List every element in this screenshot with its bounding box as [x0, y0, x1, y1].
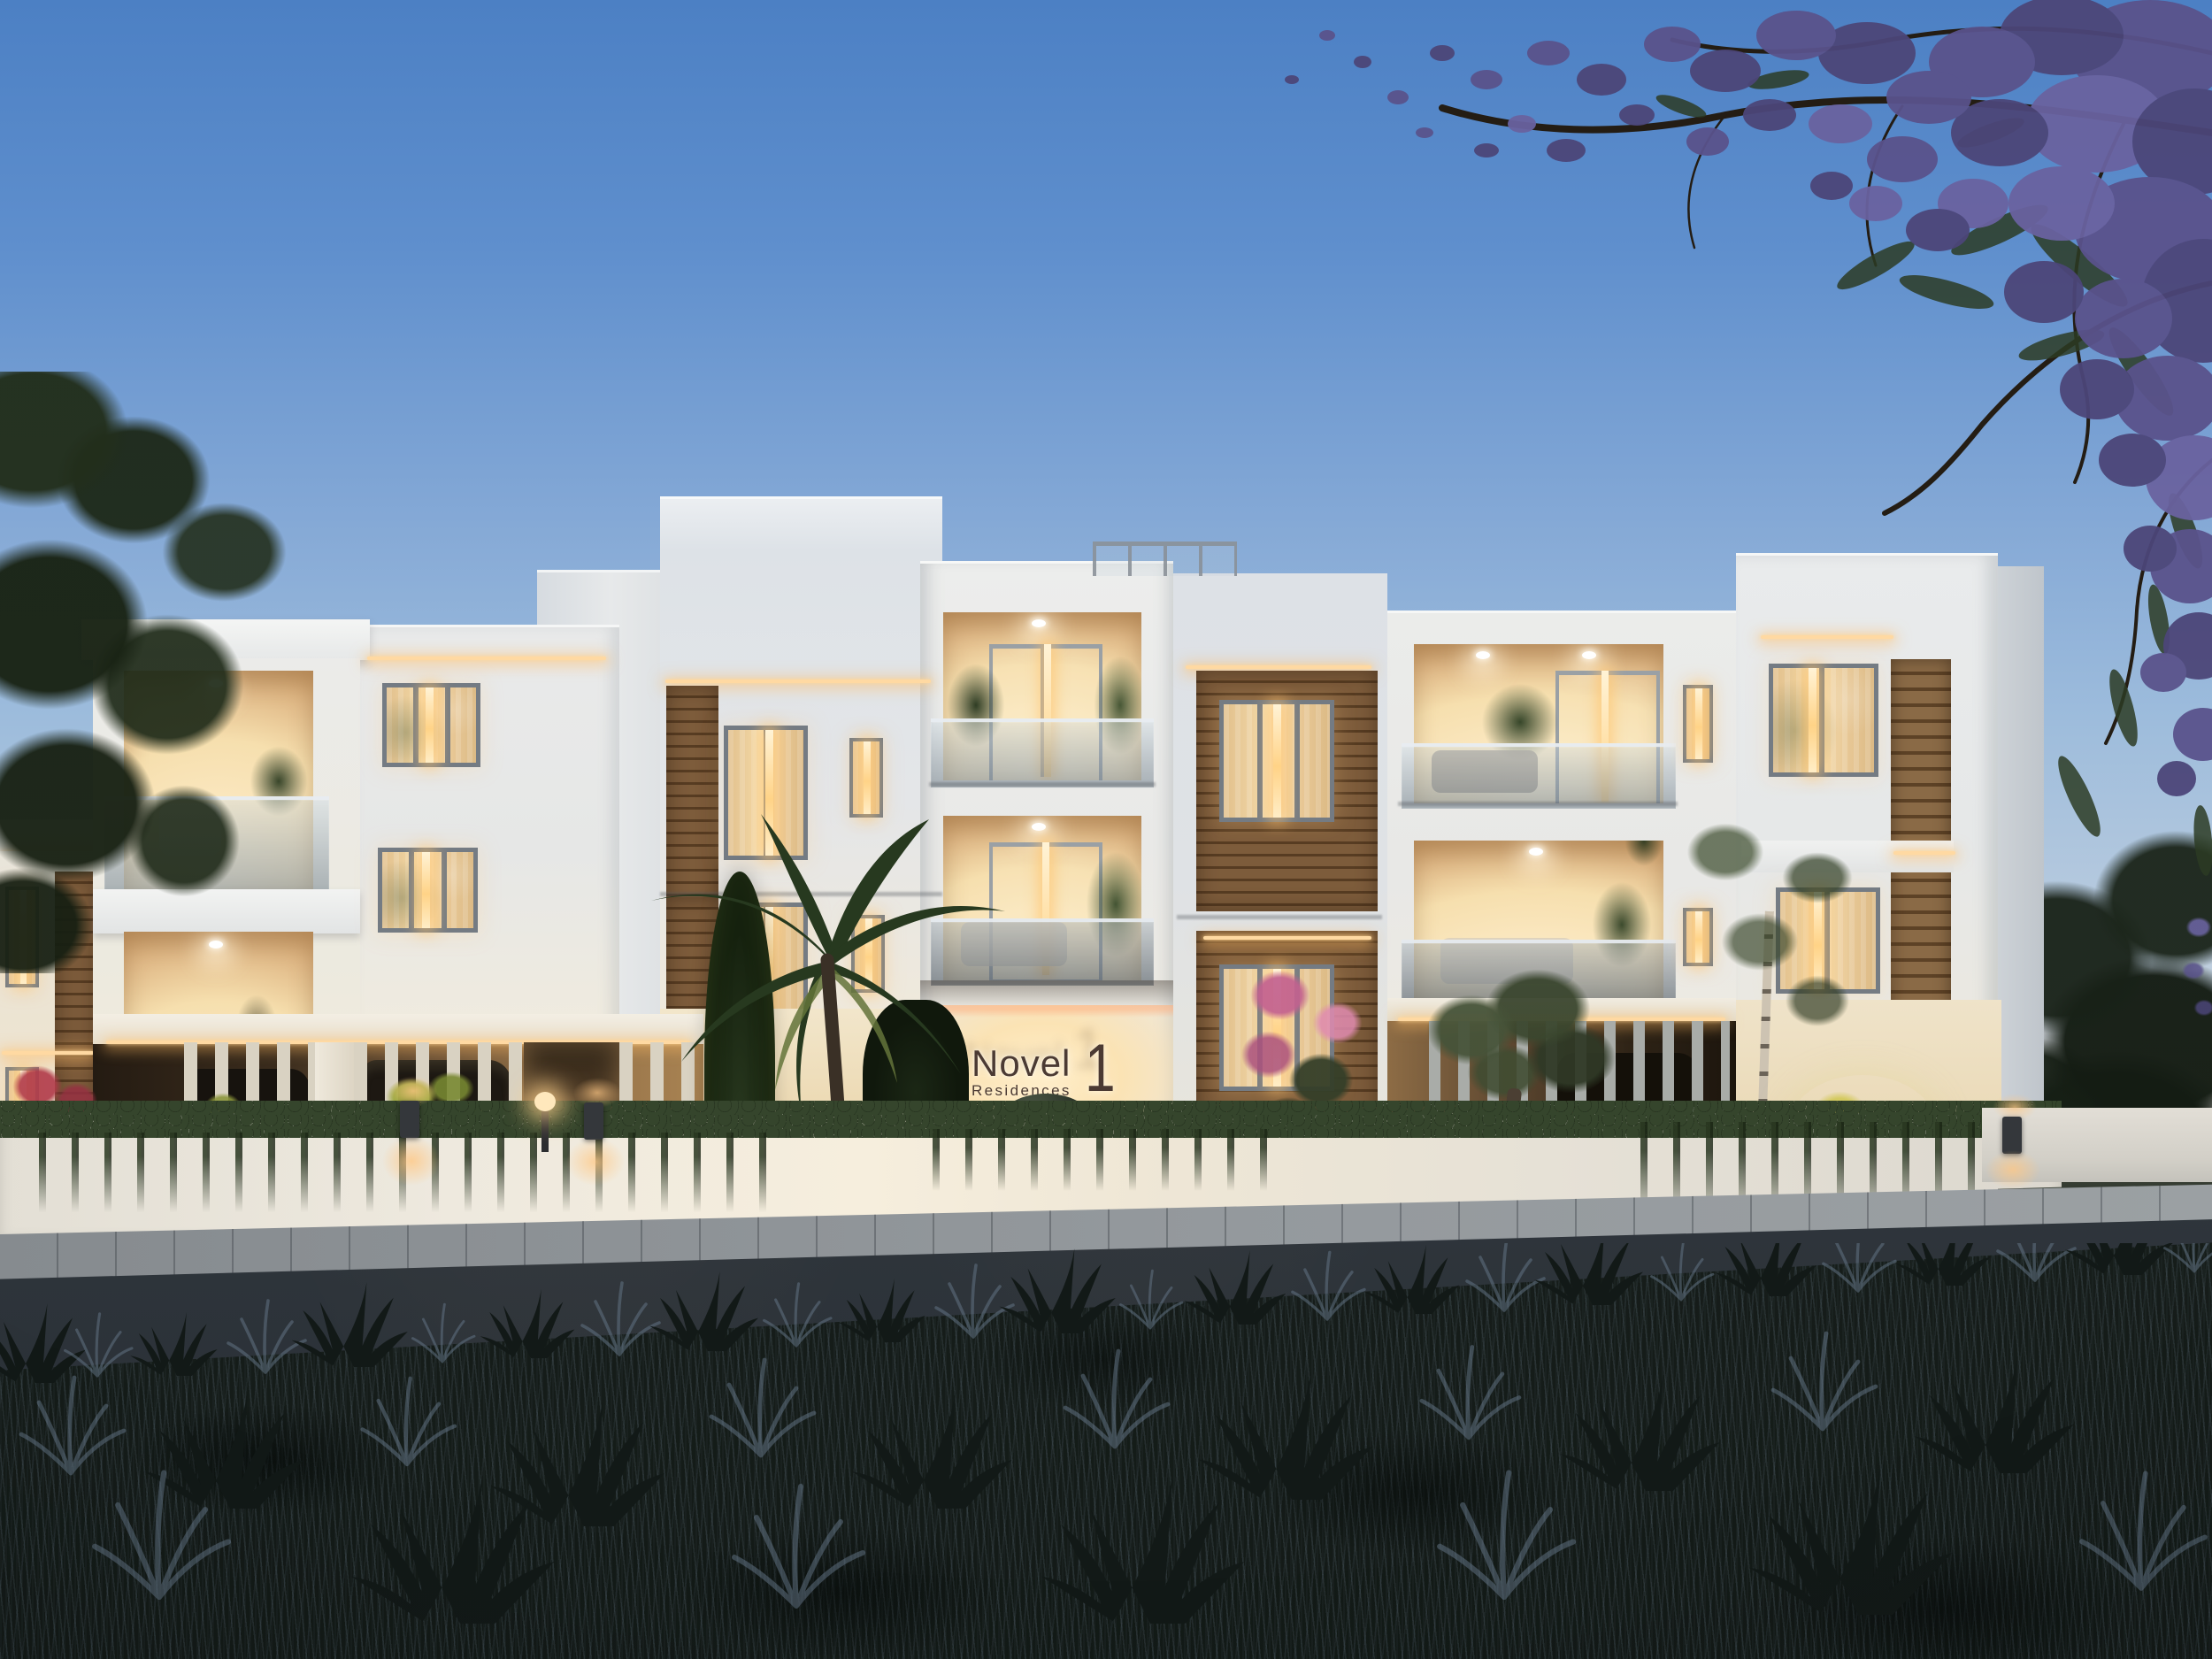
jacaranda-tree — [1106, 0, 2212, 938]
jacaranda-blossoms — [1285, 0, 2212, 796]
curtain-light-streak — [422, 852, 430, 928]
sign-number-text: 1 — [1085, 1035, 1116, 1102]
window-mullion — [413, 687, 419, 763]
grass-tufts — [0, 1243, 2212, 1659]
sconce-body — [584, 1102, 603, 1140]
carport-fascia-left — [93, 1014, 703, 1044]
sconce-body — [400, 1101, 419, 1138]
sconce-body — [2002, 1117, 2022, 1154]
left-tree-foliage — [0, 372, 319, 973]
window-c-upper — [382, 683, 480, 767]
window-mullion — [409, 852, 414, 928]
grass-edge-tufts — [0, 1243, 2212, 1383]
bollard-post — [541, 1104, 549, 1152]
dusk-residence-render: Novel1 Novel Residences 1 — [0, 0, 2212, 1659]
window-mullion — [442, 852, 447, 928]
ceiling-downlight — [1032, 619, 1046, 627]
wall-ivy-strands — [27, 1133, 787, 1212]
wall-ivy-strands-center — [920, 1129, 1292, 1191]
grass-inner-tufts — [21, 1333, 2205, 1624]
curtain-light-streak — [426, 687, 434, 763]
soffit-led-c — [367, 657, 606, 660]
olive-tree-canopy — [1405, 966, 1626, 1108]
soffit-led-a — [665, 680, 931, 683]
window-c-lower — [378, 848, 478, 933]
window-mullion — [445, 687, 450, 763]
neighbor-soffit-led-2 — [2, 1051, 94, 1055]
